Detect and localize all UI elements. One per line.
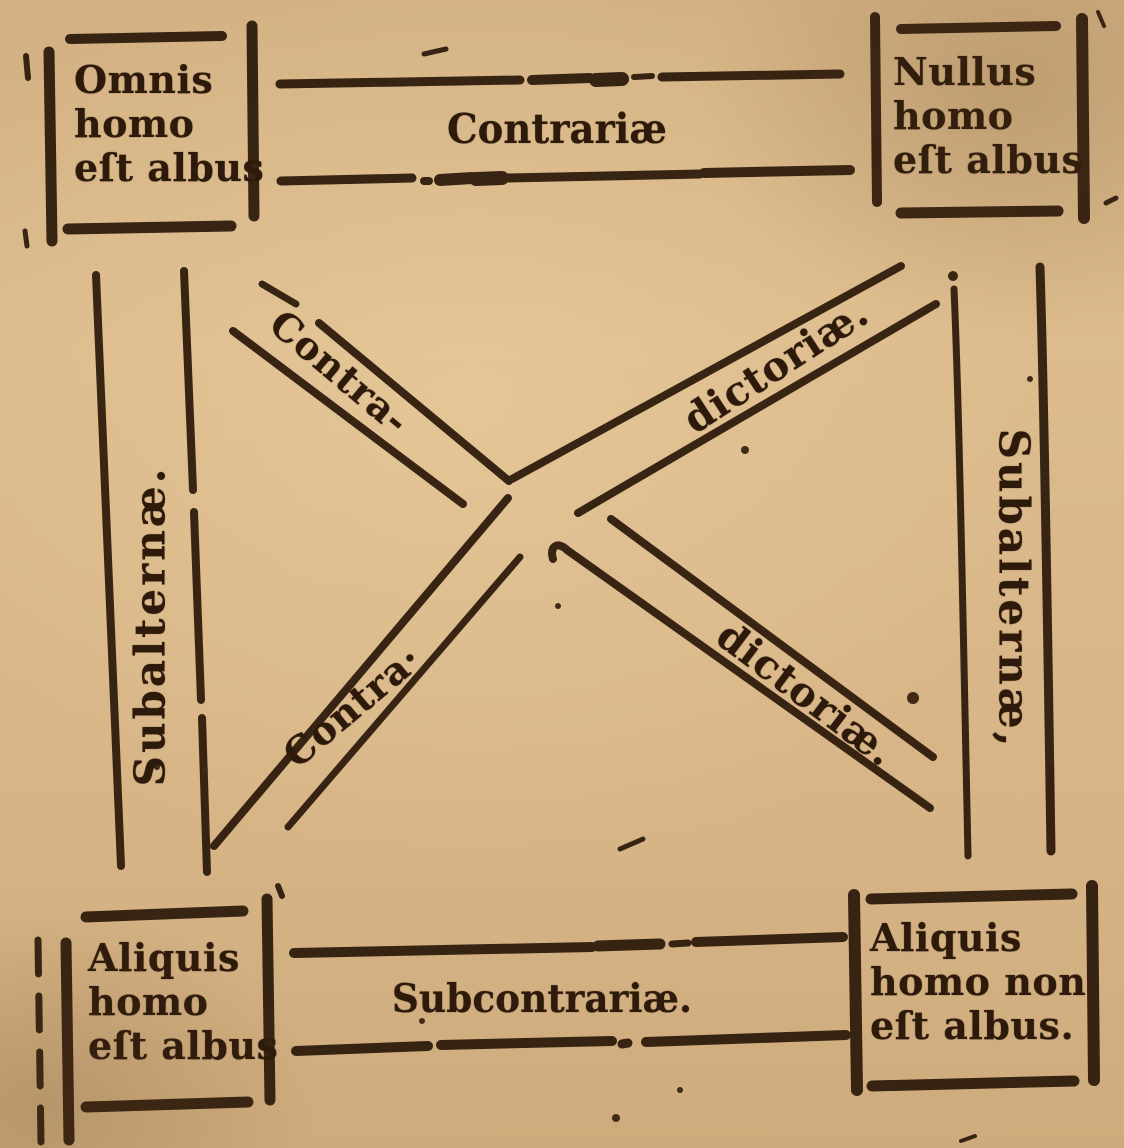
proposition-top-left: Omnis homo eſt albus [74, 58, 264, 190]
proposition-top-right: Nullus homo eſt albus [893, 50, 1083, 182]
proposition-line: Nullus [893, 50, 1083, 94]
proposition-line: Aliquis [870, 916, 1086, 960]
proposition-line: eſt albus [74, 146, 264, 190]
subalternae-right-label: Subalternæ, [990, 429, 1039, 750]
subcontrariae-label: Subcontrariæ. [392, 976, 692, 1022]
subalternae-left-label: Subalternæ. [126, 466, 175, 787]
proposition-line: Aliquis [88, 936, 278, 980]
proposition-line: homo non [870, 960, 1086, 1004]
proposition-line: Omnis [74, 58, 264, 102]
proposition-line: homo [74, 102, 264, 146]
proposition-bottom-left: Aliquis homo eſt albus [88, 936, 278, 1068]
proposition-line: homo [88, 980, 278, 1024]
proposition-line: eſt albus. [870, 1004, 1086, 1048]
proposition-bottom-right: Aliquis homo non eſt albus. [870, 916, 1086, 1048]
contrariae-label: Contrariæ [447, 105, 667, 153]
proposition-line: eſt albus [88, 1024, 278, 1068]
proposition-line: eſt albus [893, 138, 1083, 182]
proposition-line: homo [893, 94, 1083, 138]
square-of-opposition-diagram: Omnis homo eſt albus Nullus homo eſt alb… [0, 0, 1124, 1148]
